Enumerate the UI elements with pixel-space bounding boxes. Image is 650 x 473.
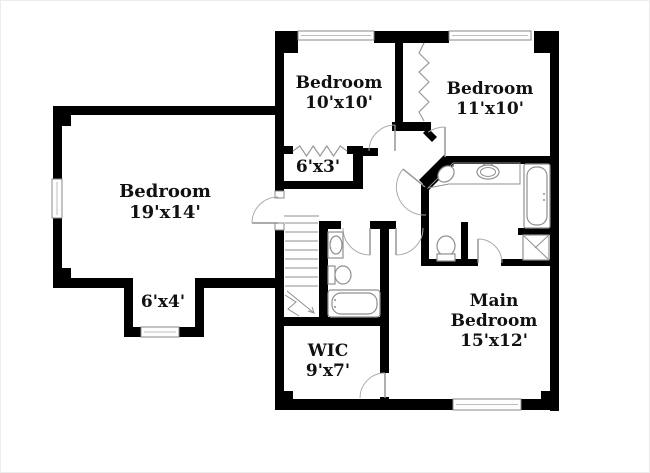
window-icon [52,179,62,218]
label-main-bedroom-15x12: Main Bedroom 15'x12' [451,291,538,351]
door-swing-icon [252,197,278,223]
vanity-sink-icon [328,232,343,258]
label-nook-6x4: 6'x4' [141,292,185,312]
window-icon [298,31,374,40]
room-dims: 11'x10' [456,99,524,119]
toilet-icon [328,266,351,284]
label-bedroom-10x10: Bedroom 10'x10' [296,73,383,113]
door-swing-icon [343,228,370,255]
window-icon [453,399,521,410]
room-dims: 9'x7' [306,361,350,381]
door-swing-icon [369,125,395,151]
main-bathroom [428,163,550,261]
room-name: Main [470,291,519,311]
room-dims: 15'x12' [460,331,528,351]
staircase-icon [284,216,319,316]
label-closet-6x3: 6'x3' [296,157,340,177]
room-name: Bedroom [447,79,534,99]
label-bedroom-11x10: Bedroom 11'x10' [447,79,534,119]
room-name: Bedroom [451,311,538,331]
shower-icon [523,235,549,260]
floor-plan-page: Bedroom 10'x10' Bedroom 11'x10' Bedroom … [0,0,650,473]
door-swing-icon [396,228,423,255]
room-dims: 10'x10' [305,93,373,113]
window-icon [141,327,179,337]
hall-bathroom [328,232,380,317]
window-icon [449,31,531,40]
bathtub-icon [524,164,550,228]
room-dims: 6'x4' [141,292,185,312]
toilet-icon [437,236,455,261]
door-swing-icon [478,239,502,263]
door-swing-icon [360,373,385,398]
bathtub-icon [328,290,380,317]
room-name: Bedroom [119,181,211,202]
accordion-door-icon [293,146,347,156]
floor-plan: Bedroom 10'x10' Bedroom 11'x10' Bedroom … [1,1,650,473]
accordion-door-icon [419,43,429,121]
room-dims: 19'x14' [129,202,201,223]
label-wic-9x7: WIC 9'x7' [306,341,350,381]
room-dims: 6'x3' [296,157,340,177]
room-name: WIC [307,341,349,361]
label-bedroom-19x14: Bedroom 19'x14' [119,181,211,223]
room-name: Bedroom [296,73,383,93]
